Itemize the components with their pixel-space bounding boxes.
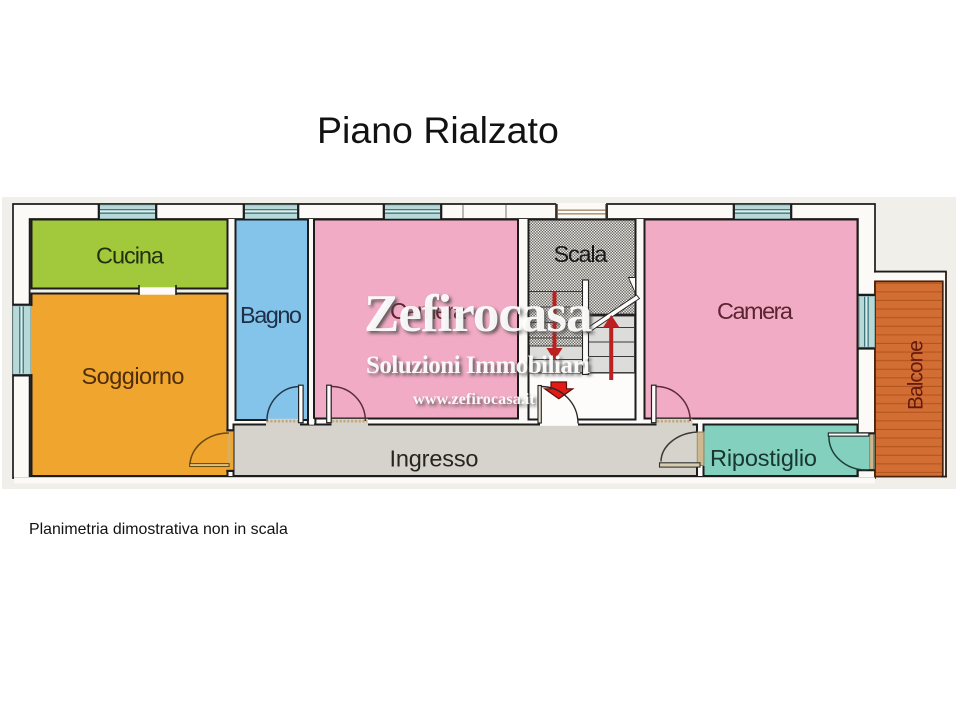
svg-text:Scala: Scala	[554, 241, 609, 267]
svg-text:Balcone: Balcone	[905, 340, 928, 410]
svg-text:Ingresso: Ingresso	[390, 446, 479, 472]
svg-text:Bagno: Bagno	[240, 302, 302, 328]
svg-text:Camera: Camera	[390, 298, 467, 324]
svg-text:Ripostiglio: Ripostiglio	[710, 445, 817, 471]
svg-text:Soggiorno: Soggiorno	[82, 363, 185, 389]
svg-text:Camera: Camera	[717, 298, 794, 324]
svg-text:Cucina: Cucina	[96, 243, 165, 269]
